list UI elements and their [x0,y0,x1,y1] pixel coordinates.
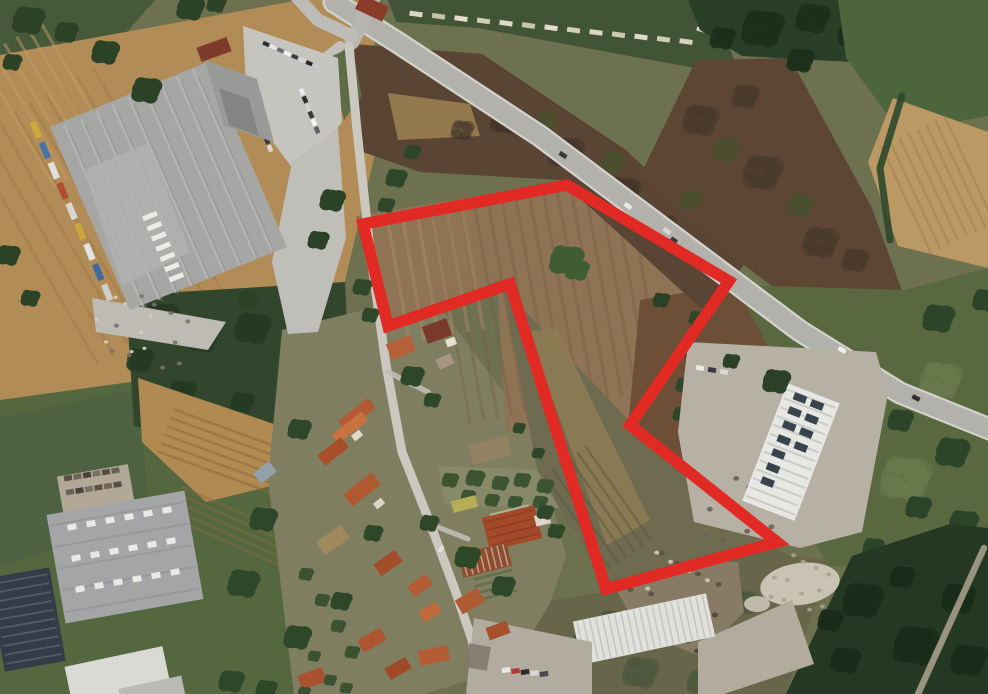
village-trees [388,169,397,177]
trees-right [865,538,874,546]
debris-piles [668,560,673,564]
village-trees [297,430,308,439]
trees-top-left [104,41,120,55]
trees-top-left [322,189,333,198]
trees-canopy [721,28,736,41]
yard-clutter [114,296,118,299]
trees-top-left [23,290,31,297]
village-trees [431,401,439,408]
debris-piles [716,582,722,587]
orchard-trees [540,496,549,503]
yard-clutter [142,347,146,350]
yard-clutter [173,340,178,344]
orchard-trees [521,473,531,481]
orchard-row-trees [337,627,344,633]
village-trees [298,420,312,432]
village-trees [231,569,245,581]
trees-top-left [5,54,13,61]
orchard-row-trees [314,651,321,657]
village-trees [428,516,439,525]
village-trees [229,683,241,693]
village-trees [369,316,377,323]
trees-right [951,439,971,456]
scrub-mottle [639,658,660,676]
field-mottle [681,190,691,199]
village-trees [538,448,545,454]
yard-clutter [702,533,708,538]
field-mottle [854,249,870,263]
orchard-trees [499,484,507,491]
field-mottle [747,155,764,170]
orchard-row-trees [300,568,306,573]
gravel-texture [820,604,825,608]
yard-clutter [139,331,143,334]
orchard-row-trees [346,646,352,651]
village-trees [427,524,436,532]
yard-clutter [185,319,190,323]
trees-canopy [799,3,814,16]
trees-top-left [145,78,162,93]
village-trees [360,288,369,296]
orchard-row-trees [325,675,331,680]
village-trees [230,671,245,684]
field-mottle [688,201,699,210]
village-trees [533,448,539,453]
orchard-row-trees [305,575,312,581]
trees-top-left [317,232,329,243]
trees-canopy [761,11,786,32]
village-trees [519,423,526,429]
grass-light-patch [886,456,908,475]
gravel-texture [769,595,774,599]
orchard-row-trees [332,620,338,625]
village-trees [287,625,299,635]
field-mottle [699,106,720,124]
field-mottle [716,138,728,148]
forest-canopy [847,583,864,598]
village-trees [361,280,372,289]
gravel-texture [799,592,804,596]
woods-canopy [181,381,197,395]
village-trees [544,505,554,513]
forest-canopy [861,584,885,604]
trees-top-left [331,190,346,203]
trees-canopy [790,48,802,58]
woods-canopy [241,393,255,405]
trees-right [949,454,965,468]
woods-canopy [130,348,142,358]
parcel-tree [660,301,668,308]
trees-right [935,320,950,333]
field-mottle [686,105,702,118]
forest-canopy [859,602,878,618]
parcel-tree [568,260,578,269]
field-mottle [845,248,857,258]
trees-top-left [28,299,37,307]
trees-canopy [798,62,811,73]
trees-top-left [246,301,256,310]
field-mottle [799,194,815,208]
village-trees [380,198,387,204]
village-trees [411,145,421,153]
orchard-row-trees [338,620,347,627]
field-mottle [610,164,622,174]
gravel-texture [785,578,790,582]
orchard-trees [539,479,546,485]
trees-top-left [95,40,107,50]
village-trees [466,547,481,560]
orchard-trees [544,487,552,494]
trees-canopy [758,31,778,48]
yard-clutter [707,507,713,512]
trees-top-left [247,292,259,303]
village-trees [364,308,371,314]
scrub-mottle [637,674,654,688]
yard-clutter [123,302,127,305]
forest-canopy [900,579,912,589]
village-trees [394,179,404,188]
parcel-tree [576,261,590,273]
village-trees [555,532,563,539]
parcel-tree [655,293,662,299]
trees-right [908,496,919,505]
village-trees [410,377,421,386]
orchard-trees [486,494,492,499]
village-trees [502,577,516,589]
parcel-tree [553,245,568,258]
forest-canopy [844,648,861,663]
debris-piles [648,591,654,596]
orchard-trees [474,471,485,480]
forest-canopy [842,662,856,674]
orchard-trees [492,494,501,501]
village-trees [372,526,383,535]
yard-clutter [130,350,134,353]
woods-canopy [172,380,184,390]
trees-right [899,410,914,423]
village-trees [411,367,425,379]
forest-canopy [945,583,960,596]
aerial-scene [0,0,988,694]
trees-top-left [11,55,22,64]
field-mottle [537,111,547,120]
trees-top-left [64,33,75,42]
orchard-row-trees [345,689,351,694]
field-mottle [725,139,741,153]
scrub-mottle [626,657,642,670]
field-mottle [744,85,760,99]
village-trees [537,454,543,459]
orchard-row-trees [304,687,311,693]
parcel-tree [730,362,738,369]
trees-top-left [188,10,201,21]
trees-canopy [712,27,723,36]
village-trees [355,279,363,286]
trees-right [890,409,901,418]
gravel-texture [791,553,796,557]
trees-top-left [16,6,30,18]
village-trees [366,525,374,532]
village-trees [550,524,557,530]
debris-piles [695,572,701,577]
village-trees [385,206,393,213]
field-mottle [602,151,613,160]
village-trees [290,419,300,428]
trees-top-left [7,246,21,258]
yard-clutter [149,315,153,318]
street-patch [465,643,491,670]
yard-clutter [169,311,174,315]
parcel-tree [660,293,670,301]
field-mottle [545,112,559,124]
trees-top-left [316,241,326,250]
gravel-texture [807,608,812,612]
orchard-trees [521,481,529,488]
orchard-trees [515,496,524,503]
orchard-trees [494,476,501,482]
woods-canopy [249,330,266,344]
yard-clutter [160,366,165,370]
village-trees [403,366,413,375]
village-trees [371,534,380,542]
orchard-trees [516,473,523,479]
trees-right [975,289,986,298]
forest-canopy [834,647,847,658]
village-trees [465,559,477,569]
orchard-row-trees [329,681,335,686]
orchard-row-trees [299,687,305,692]
gravel-texture [801,560,806,564]
village-trees [431,393,441,401]
gravel-texture [826,572,831,576]
trees-top-left [103,54,116,65]
trees-right [939,437,954,450]
parcel-tree [774,383,787,394]
parcel-tree [725,354,732,360]
village-trees [494,576,504,585]
trees-top-left [10,63,19,71]
field-mottle [759,174,778,190]
field-mottle [453,120,463,129]
field-mottle [697,122,714,136]
village-trees [221,670,232,679]
orchard-trees [449,481,457,488]
orchard-row-trees [352,646,361,653]
orchard-row-trees [341,683,347,688]
trees-canopy [811,5,831,22]
yard-clutter [177,361,182,365]
orchard-trees [468,470,476,477]
trees-right [937,306,956,322]
trees-canopy [799,49,815,63]
grass-light-patch [924,362,942,378]
orchard-trees [473,479,482,487]
yard-clutter [139,294,144,298]
forest-canopy [820,609,831,618]
orchard-trees [544,479,554,487]
forest-canopy [901,567,916,580]
orchard-row-trees [321,601,328,607]
field-mottle [743,98,756,109]
field-mottle [724,152,737,163]
field-mottle [790,193,802,203]
field-mottle [461,121,475,133]
village-trees [555,524,565,532]
forest-canopy [892,566,903,575]
debris-piles [705,578,710,582]
orchard-trees [509,496,515,501]
woods-canopy [138,362,151,373]
gravel-texture [817,588,822,592]
trees-canopy [809,20,825,34]
field-mottle [817,244,834,258]
village-trees [340,593,352,604]
village-trees [539,505,546,511]
field-mottle [735,84,747,94]
forest-canopy [898,626,917,642]
forest-canopy [967,646,988,664]
trees-right [952,510,965,521]
forest-canopy [954,645,970,658]
grass-light-patch [903,458,933,483]
village-trees [333,592,342,600]
village-trees [426,393,433,399]
village-trees [258,680,267,688]
village-trees [514,423,520,428]
satellite-image [0,0,988,694]
field-mottle [806,227,822,240]
village-trees [253,507,265,517]
yard-clutter [114,324,119,328]
forest-canopy [914,628,940,650]
trees-top-left [240,291,249,299]
trees-top-left [27,8,46,24]
debris-piles [659,551,665,556]
gravel-texture [782,598,787,602]
forest-canopy [829,610,844,623]
field-mottle [819,228,840,246]
trees-top-left [143,92,157,104]
gravel-pile [744,596,770,612]
yard-clutter [110,349,115,353]
orchard-row-trees [316,594,322,599]
orchard-row-trees [322,594,331,601]
orchard-trees [491,501,498,507]
woods-canopy [233,392,243,401]
woods-canopy [240,403,251,412]
orchard-row-trees [351,653,358,659]
trees-right [926,304,940,316]
field-mottle [853,262,866,273]
village-trees [242,571,261,587]
trees-top-left [310,231,319,239]
yard-clutter [768,524,774,529]
orchard-trees [499,476,509,484]
trees-right [917,497,932,510]
yard-clutter [127,353,132,357]
trees-top-left [135,77,148,88]
trees-top-left [65,23,79,35]
village-trees [369,308,379,316]
trees-top-left [29,291,40,300]
orchard-row-trees [306,568,315,575]
woods-canopy [139,349,155,363]
village-trees [406,145,413,151]
debris-piles [654,551,659,555]
village-trees [240,585,255,598]
parcel-tree [575,271,586,280]
village-trees [385,198,395,206]
orchard-trees [462,490,468,495]
woods-canopy [251,314,272,332]
hedge-trees [691,311,698,317]
gravel-texture [772,576,777,580]
trees-right [898,422,910,432]
village-trees [544,513,552,520]
orchard-trees [534,496,540,501]
orchard-row-trees [346,683,353,689]
orchard-row-trees [330,675,337,681]
trees-top-left [214,5,223,13]
yard-clutter [94,318,98,321]
village-trees [411,153,419,160]
village-trees [457,546,468,555]
village-trees [265,681,277,692]
trees-top-left [6,256,17,265]
field-mottle [689,191,703,203]
trees-canopy [720,40,732,50]
village-trees [518,429,524,434]
field-mottle [798,207,811,218]
orchard-row-trees [313,657,319,662]
debris-piles [712,613,718,618]
parcel-tree [775,370,791,384]
forest-canopy [965,662,982,676]
parcel-tree [730,354,740,362]
trees-right [962,511,979,526]
village-trees [262,508,278,522]
field-mottle [460,131,471,140]
yard-clutter [733,476,739,481]
trees-right [916,508,928,518]
yard-clutter [720,538,726,543]
village-trees [339,602,349,611]
field-mottle [761,156,785,176]
parcel-tree [766,369,778,379]
orchard-trees [444,473,451,479]
village-trees [395,170,407,181]
village-trees [422,515,430,522]
orchard-trees [449,473,459,481]
woods-canopy [238,313,254,326]
gravel-texture [814,566,819,570]
trees-top-left [57,22,67,31]
forest-canopy [828,622,840,632]
trees-top-left [330,202,342,212]
trees-top-left [25,22,40,35]
village-trees [261,521,274,532]
orchard-row-trees [309,651,315,656]
yard-clutter [152,303,157,307]
trees-canopy [746,10,764,26]
debris-piles [645,586,650,590]
grass-light-patch [939,363,964,384]
village-trees [295,639,308,650]
yard-clutter [104,340,108,343]
village-trees [501,587,512,596]
yard-clutter [744,529,750,534]
field-mottle [611,152,626,165]
